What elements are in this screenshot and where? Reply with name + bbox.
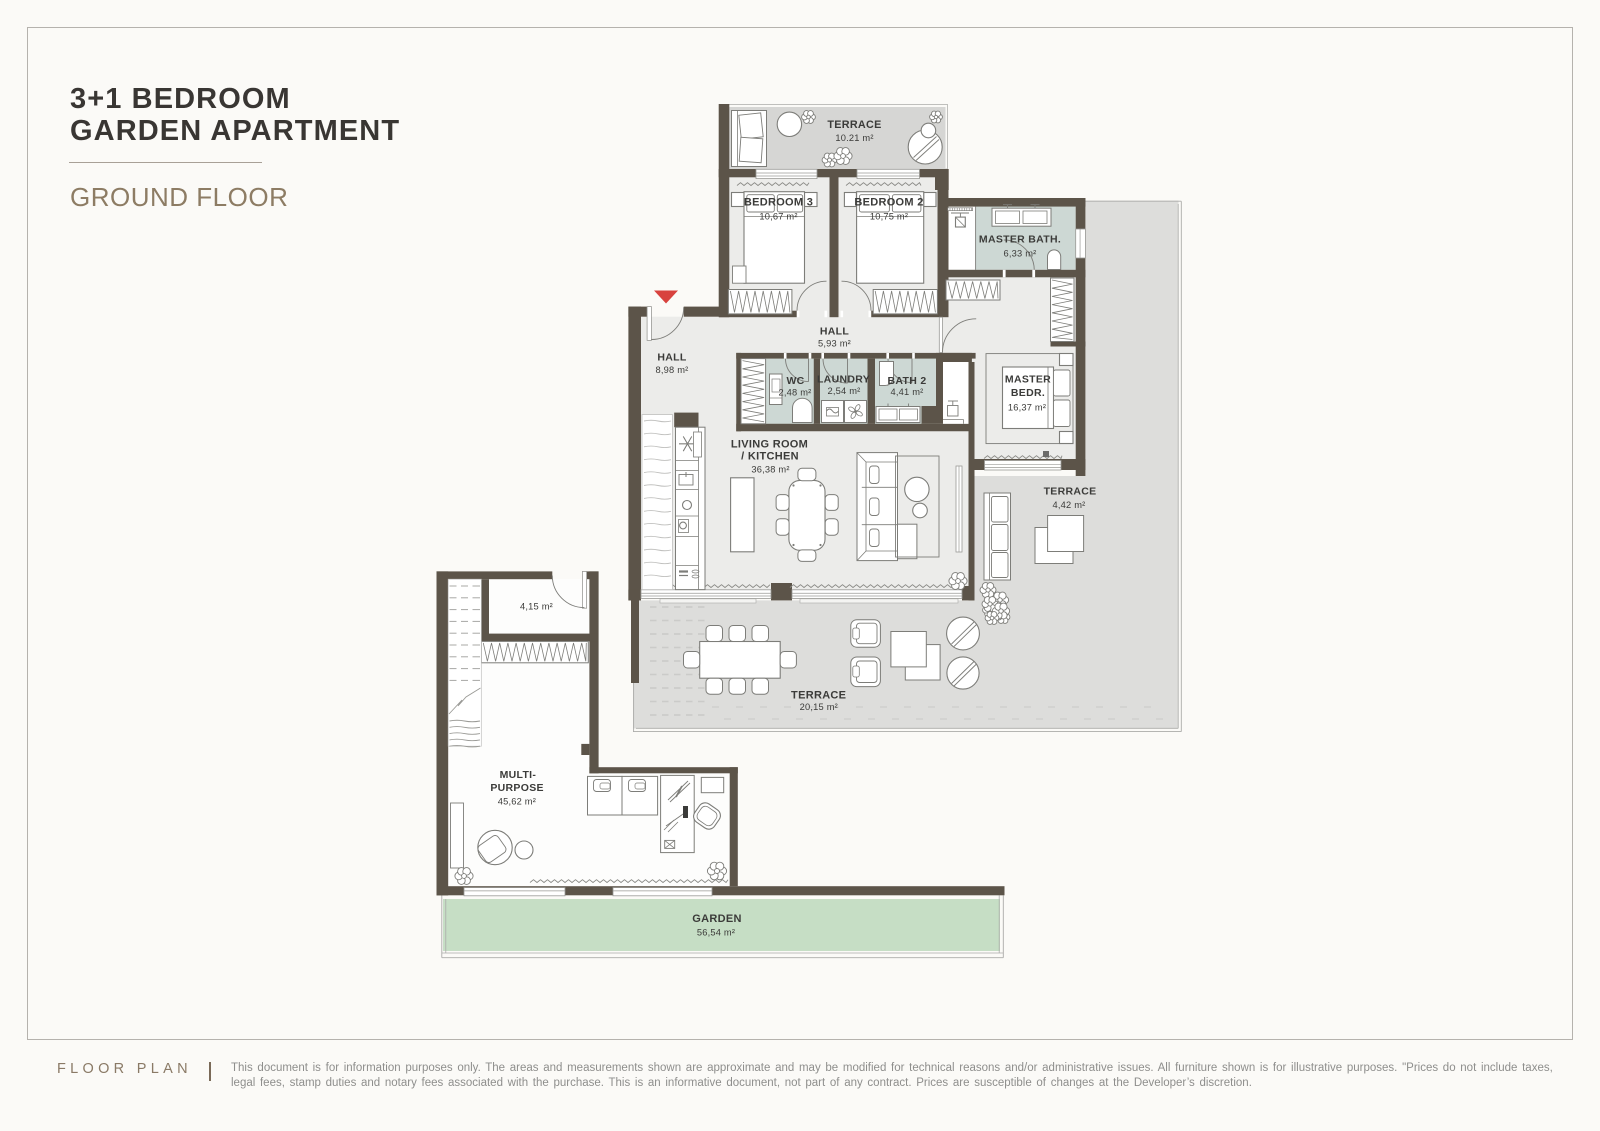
svg-text:4,15 m²: 4,15 m² [520, 602, 553, 612]
svg-text:20,15 m²: 20,15 m² [800, 702, 838, 712]
svg-text:TERRACE: TERRACE [1044, 486, 1097, 498]
svg-text:PURPOSE: PURPOSE [490, 782, 543, 794]
svg-text:/ KITCHEN: / KITCHEN [741, 451, 799, 463]
svg-text:10.21 m²: 10.21 m² [835, 133, 873, 143]
svg-text:MULTI-: MULTI- [500, 769, 537, 781]
svg-text:4,41 m²: 4,41 m² [891, 387, 924, 397]
svg-text:16,37 m²: 16,37 m² [1008, 403, 1046, 413]
svg-text:2,48 m²: 2,48 m² [779, 388, 812, 398]
svg-text:10,75 m²: 10,75 m² [870, 212, 908, 222]
svg-text:GARDEN: GARDEN [692, 913, 741, 925]
svg-text:HALL: HALL [657, 352, 686, 364]
svg-text:MASTER BATH.: MASTER BATH. [979, 234, 1061, 246]
svg-text:56,54 m²: 56,54 m² [697, 928, 735, 938]
svg-text:36,38 m²: 36,38 m² [751, 465, 789, 475]
svg-text:5,93 m²: 5,93 m² [818, 339, 851, 349]
svg-text:2,54 m²: 2,54 m² [828, 386, 861, 396]
svg-text:WC: WC [786, 375, 804, 387]
svg-text:4,42 m²: 4,42 m² [1053, 500, 1086, 510]
svg-text:BEDR.: BEDR. [1011, 387, 1045, 399]
svg-text:45,62 m²: 45,62 m² [498, 797, 536, 807]
svg-text:8,98 m²: 8,98 m² [656, 365, 689, 375]
svg-text:TERRACE: TERRACE [827, 119, 881, 131]
svg-text:HALL: HALL [820, 326, 849, 338]
svg-text:BEDROOM 2: BEDROOM 2 [854, 197, 923, 209]
svg-text:BEDROOM 3: BEDROOM 3 [744, 197, 813, 209]
svg-text:TERRACE: TERRACE [791, 690, 846, 702]
svg-text:BATH 2: BATH 2 [888, 375, 927, 387]
svg-text:LIVING ROOM: LIVING ROOM [731, 439, 808, 451]
svg-text:6,33 m²: 6,33 m² [1004, 249, 1037, 259]
svg-text:LAUNDRY: LAUNDRY [817, 374, 870, 386]
svg-text:10,67 m²: 10,67 m² [759, 212, 797, 222]
svg-text:MASTER: MASTER [1005, 374, 1051, 386]
